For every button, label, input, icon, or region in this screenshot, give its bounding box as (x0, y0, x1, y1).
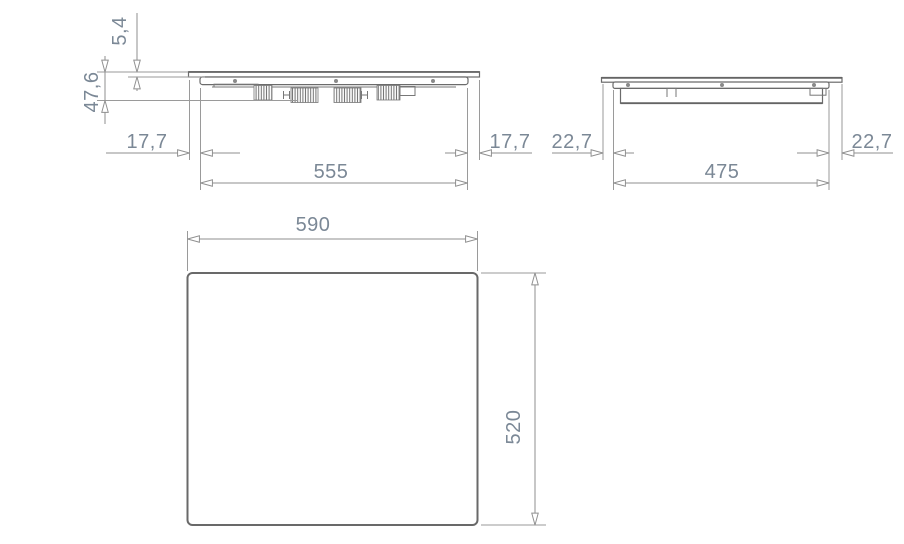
top-view: 590 520 (188, 214, 547, 525)
side-view: 22,7 475 22,7 (552, 78, 893, 190)
heatsink-fins (334, 88, 361, 103)
screw-icon (233, 79, 237, 83)
screw-icon (431, 79, 435, 83)
screw-icon (812, 83, 816, 87)
screw-icon (720, 83, 724, 87)
label-body-depth: 475 (705, 161, 740, 183)
label-front-right-overhang: 17,7 (490, 131, 531, 153)
front-view: 5,4 47,6 17,7 555 17,7 (81, 13, 532, 190)
label-body-width: 555 (314, 161, 349, 183)
plan-glass-outline (188, 273, 478, 525)
label-overall-depth: 520 (503, 410, 525, 445)
screw-icon (334, 79, 338, 83)
label-glass-thickness: 5,4 (109, 16, 131, 45)
hob-dimension-drawing: 5,4 47,6 17,7 555 17,7 (0, 0, 904, 544)
front-right-bracket (400, 87, 415, 96)
fin-clip (284, 91, 290, 99)
label-install-height: 47,6 (81, 72, 103, 113)
front-body-pan (200, 77, 468, 85)
label-side-left-overhang: 22,7 (552, 131, 593, 153)
label-side-right-overhang: 22,7 (852, 131, 893, 153)
heatsink-fins (254, 86, 272, 101)
side-housing-box (621, 88, 823, 103)
label-front-left-overhang: 17,7 (127, 131, 168, 153)
screw-icon (626, 83, 630, 87)
heatsink-fins (377, 86, 400, 101)
label-overall-width: 590 (296, 214, 331, 236)
technical-drawing-page: 5,4 47,6 17,7 555 17,7 (0, 0, 904, 544)
fin-clip (362, 91, 368, 99)
